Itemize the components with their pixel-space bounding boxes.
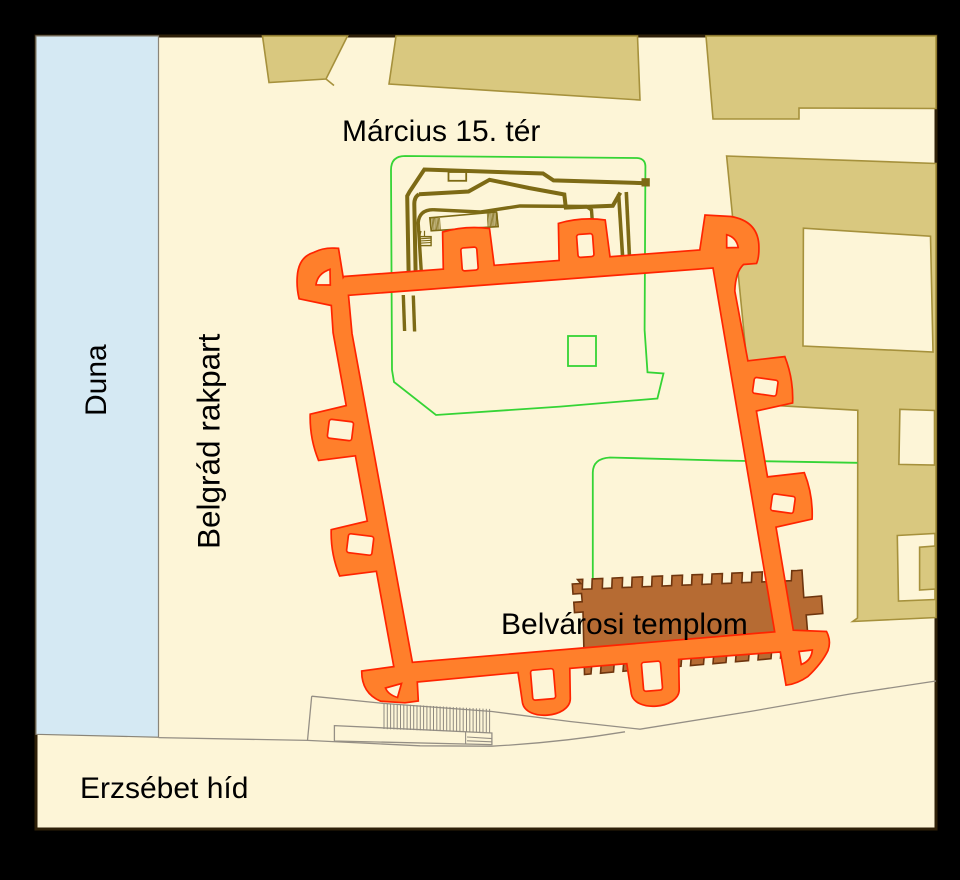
svg-text:Erzsébet híd: Erzsébet híd — [80, 772, 248, 805]
svg-text:Duna: Duna — [80, 344, 113, 416]
svg-text:Belvárosi templom: Belvárosi templom — [501, 608, 748, 641]
svg-text:Március 15. tér: Március 15. tér — [342, 115, 540, 148]
svg-text:Belgrád rakpart: Belgrád rakpart — [191, 333, 227, 549]
